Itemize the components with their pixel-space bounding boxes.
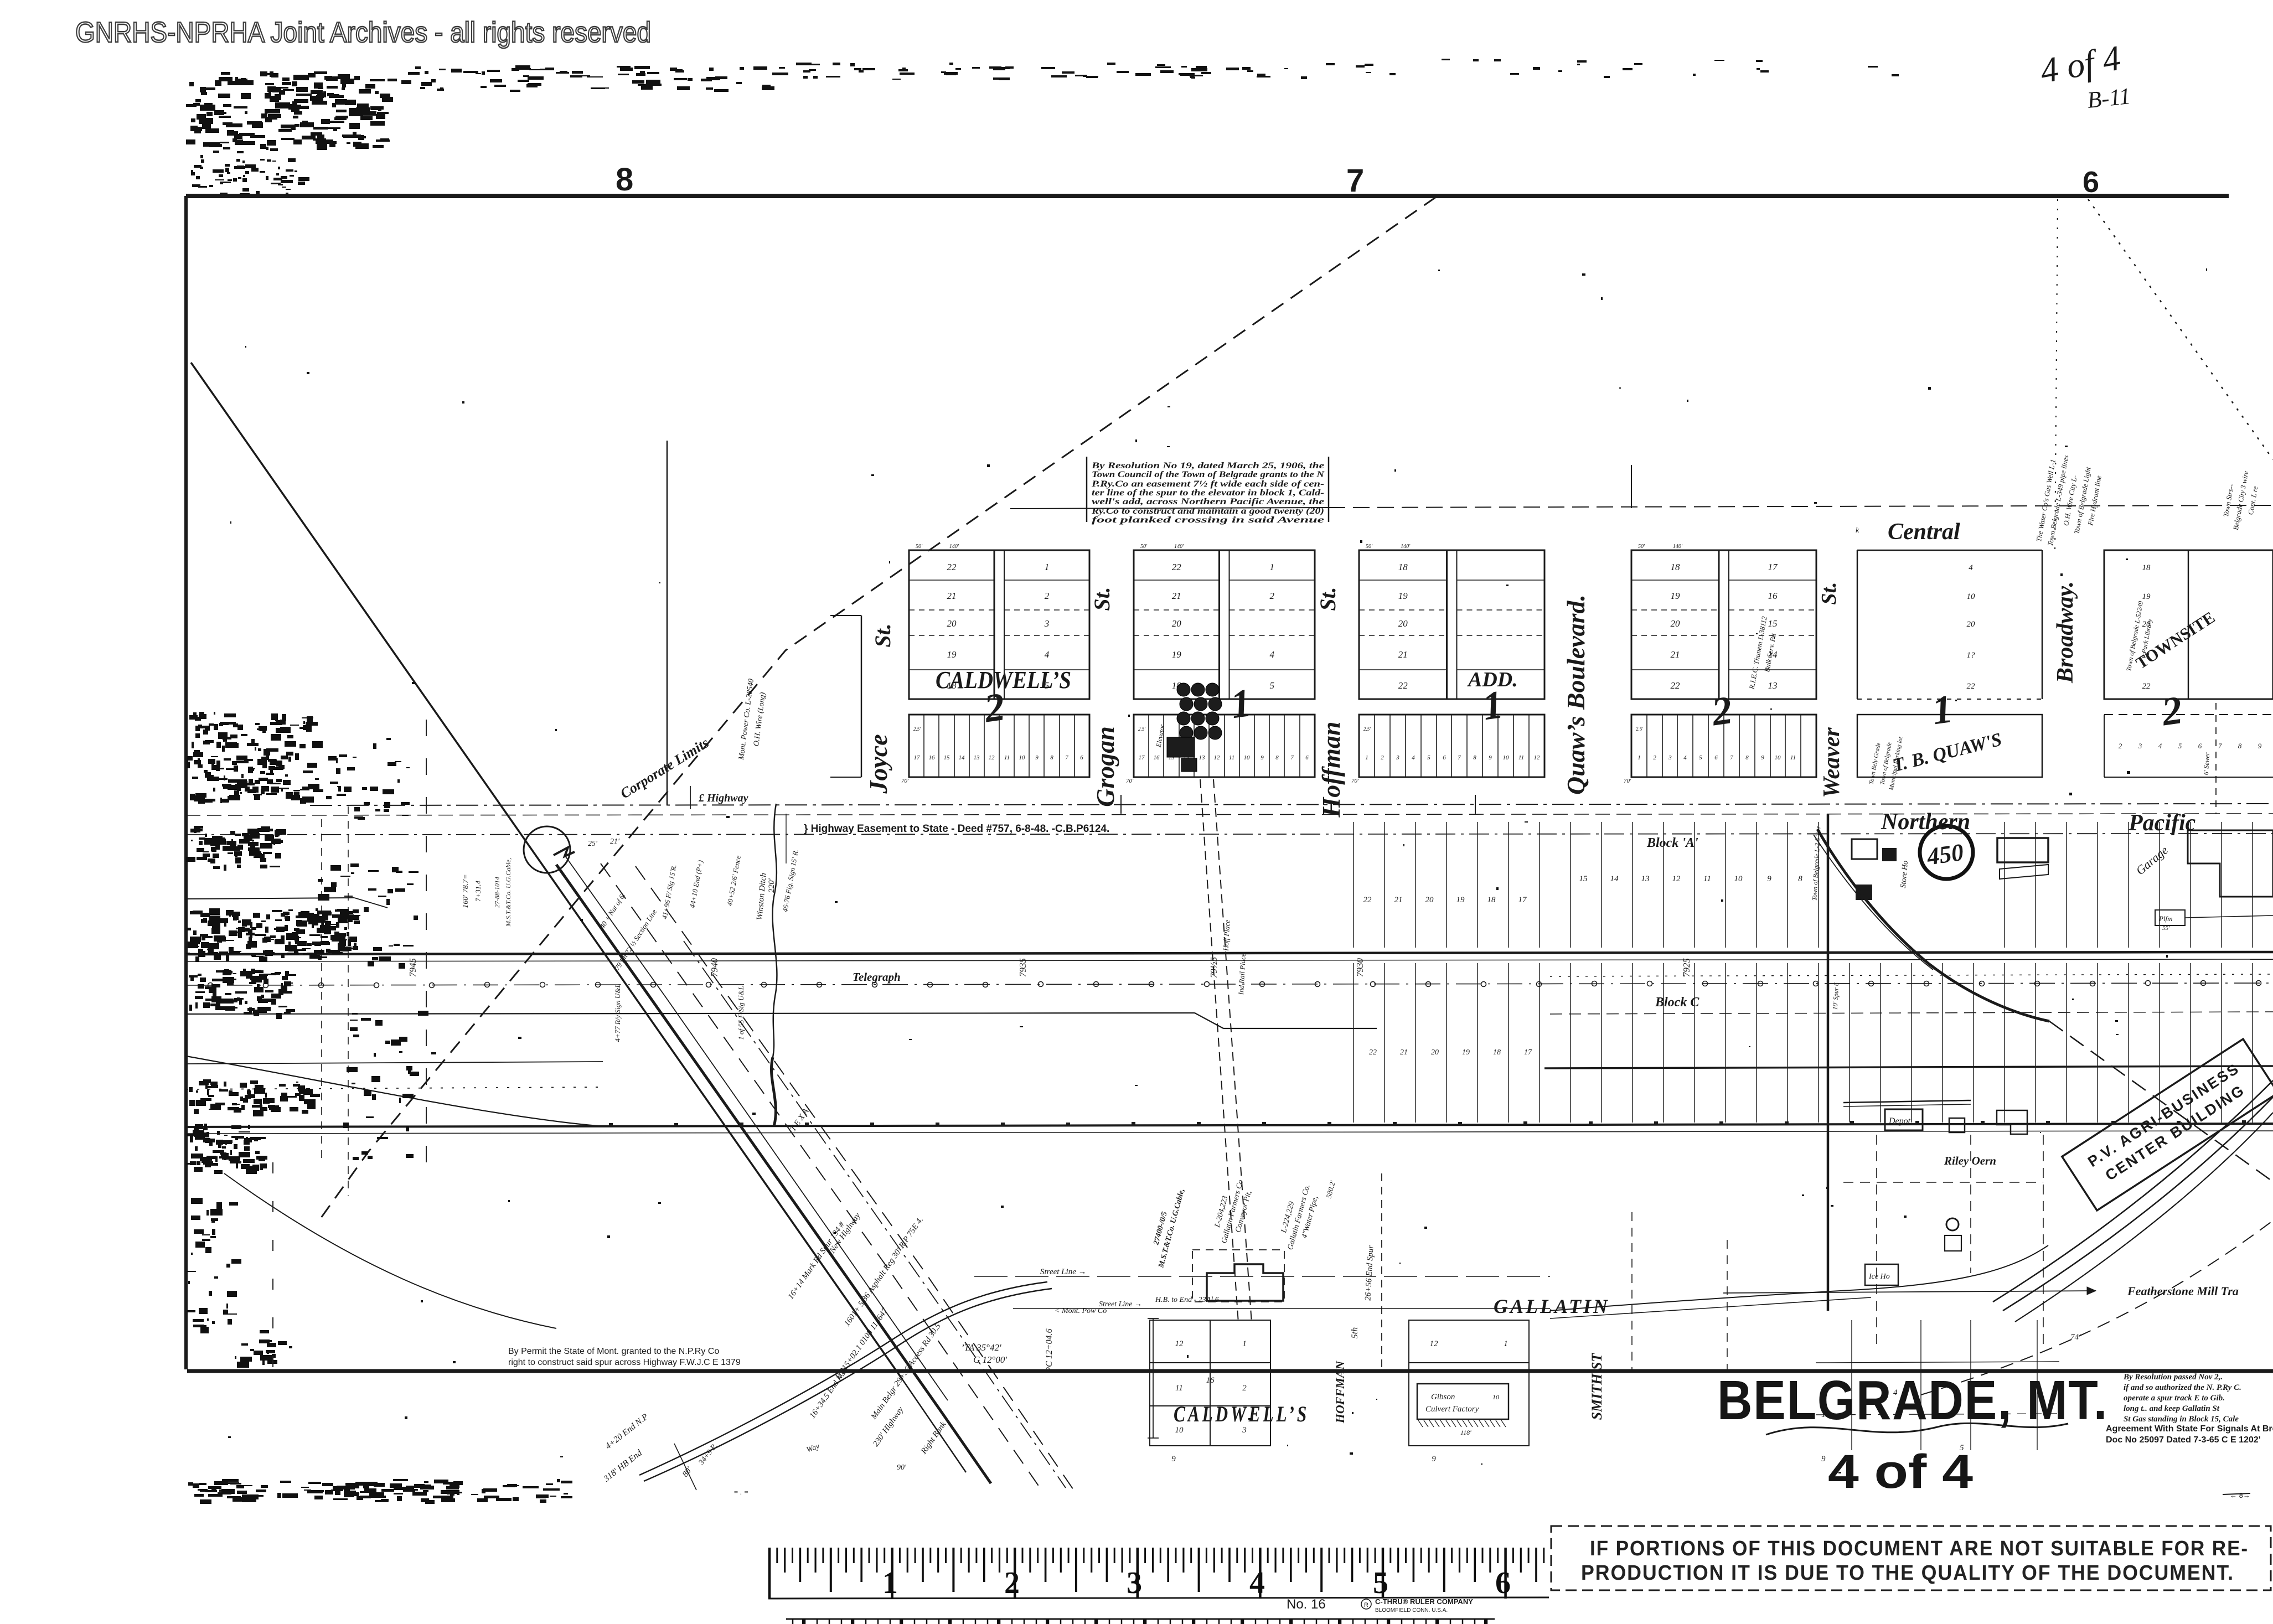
svg-text:20: 20 [1425,896,1434,904]
svg-text:9: 9 [2258,742,2262,750]
svg-text:10: 10 [1967,592,1976,601]
svg-text:3: 3 [1127,1566,1142,1600]
svg-text:3: 3 [2138,742,2142,750]
svg-text:7: 7 [1730,754,1733,761]
svg-text:Block 'A': Block 'A' [1646,836,1698,850]
svg-text:10: 10 [1734,875,1743,883]
svg-text:25': 25' [588,840,598,848]
svg-text:20: 20 [1431,1048,1439,1057]
svg-text:2: 2 [1242,1384,1247,1393]
svg-text:18: 18 [1398,562,1408,572]
svg-text:St.: St. [1315,587,1340,611]
svg-text:22: 22 [2142,682,2151,691]
svg-text:Agreement With State For Signa: Agreement With State For Signals At Broa [2106,1424,2273,1434]
svg-text:220': 220' [767,878,776,893]
svg-text:9: 9 [1821,1455,1826,1463]
svg-text:Pacific: Pacific [2128,810,2196,836]
svg-text:Riley Oern: Riley Oern [1944,1154,1996,1167]
svg-text:1 of 55 F/Sig U&L: 1 of 55 F/Sig U&L [737,986,745,1040]
svg-text:17: 17 [1524,1048,1532,1057]
svg-text:PC 12+04.6: PC 12+04.6 [1045,1328,1054,1373]
svg-text:ter line of the spur to the el: ter line of the spur to the elevator in … [1092,488,1324,498]
svg-text:10: 10 [1019,754,1026,761]
svg-text:2.5': 2.5' [1138,726,1146,732]
svg-text:12: 12 [989,754,995,761]
svg-text:6: 6 [1305,754,1309,761]
svg-text:R: R [1364,1602,1368,1609]
svg-text:2: 2 [1653,754,1656,761]
svg-text:70': 70' [1351,778,1359,784]
svg-text:1: 1 [1045,562,1050,572]
svg-text:4: 4 [1270,649,1275,660]
svg-text:PRODUCTION IT IS DUE TO THE QU: PRODUCTION IT IS DUE TO THE QUALITY OF T… [1581,1561,2234,1585]
svg-text:By Permit the State of Mont. g: By Permit the State of Mont. granted to … [508,1347,719,1356]
svg-text:15: 15 [1579,875,1588,883]
svg-text:foot planked crossing in said: foot planked crossing in said Avenue [1092,515,1324,525]
svg-text:5: 5 [1699,754,1702,761]
svg-text:7: 7 [1065,754,1068,761]
svg-text:Block C: Block C [1655,995,1699,1010]
svg-text:Town Council of the Town of Be: Town Council of the Town of Belgrade gra… [1092,470,1325,479]
svg-text:St Gas standing in Block 15, C: St Gas standing in Block 15, Cale [2124,1415,2239,1424]
svg-text:Central: Central [1888,519,1960,545]
svg-text:55': 55' [2162,925,2170,932]
svg-text:14: 14 [1610,875,1619,883]
svg-text:450: 450 [1925,839,1965,871]
svg-text:22: 22 [947,562,957,572]
svg-text:7: 7 [1346,163,1364,199]
svg-text:9: 9 [1432,1455,1436,1463]
svg-text:2: 2 [1381,754,1384,761]
svg-text:50': 50' [916,544,923,550]
svg-text:8: 8 [1473,754,1476,761]
svg-text:21: 21 [1671,649,1680,660]
svg-text:Culvert Factory: Culvert Factory [1425,1405,1479,1414]
svg-text:20: 20 [947,618,957,629]
svg-text:No. 16: No. 16 [1287,1597,1326,1612]
svg-text:Broadway.: Broadway. [2053,581,2078,684]
svg-text:B-11: B-11 [2086,84,2132,113]
svg-text:SMITH ST: SMITH ST [1589,1353,1605,1420]
svg-text:} Highway Easement to State -: } Highway Easement to State - Deed #757,… [804,823,1109,835]
svg-text:15: 15 [1768,618,1778,629]
svg-text:P.Ry.Co an easement 7½ ft wide: P.Ry.Co an easement 7½ ft wide each side… [1092,479,1324,489]
svg-text:= . =: = . = [733,1488,748,1496]
svg-text:21: 21 [1172,591,1181,601]
svg-text:140': 140' [949,544,959,550]
svg-text:3: 3 [1044,618,1050,629]
svg-text:13: 13 [1199,754,1206,761]
svg-text:12: 12 [1672,875,1681,883]
svg-text:7: 7 [2218,742,2222,750]
svg-text:11: 11 [1518,754,1524,761]
svg-text:21': 21' [610,837,620,846]
svg-text:2.5': 2.5' [913,726,921,732]
svg-text:50': 50' [1366,544,1373,550]
svg-text:18: 18 [1493,1048,1501,1057]
svg-text:4: 4 [1683,754,1687,761]
svg-text:8: 8 [2238,742,2242,750]
svg-text:1: 1 [1504,1339,1508,1348]
svg-text:1: 1 [1637,754,1641,761]
svg-text:70': 70' [901,778,909,784]
svg-text:CALDWELL’S: CALDWELL’S [936,666,1071,694]
svg-text:2: 2 [1004,1566,1020,1600]
svg-text:8: 8 [1798,875,1802,883]
svg-text:21: 21 [1394,896,1403,904]
svg-text:1: 1 [1242,1339,1247,1348]
svg-text:160' 78.7=: 160' 78.7= [462,874,470,908]
svg-text:11: 11 [1703,875,1711,883]
svg-text:Doc No 25097 Dated 7-3-65 C E: Doc No 25097 Dated 7-3-65 C E 1202' [2106,1435,2261,1445]
svg-text:18: 18 [1487,896,1496,904]
svg-text:22: 22 [1671,680,1681,691]
svg-text:11: 11 [1790,754,1796,761]
svg-text:Hoffman: Hoffman [1317,722,1345,818]
svg-text:2.5': 2.5' [1363,726,1371,732]
svg-text:4+77 R/y Sign U&L: 4+77 R/y Sign U&L [613,984,622,1042]
svg-text:17: 17 [914,754,921,761]
svg-text:6: 6 [1080,754,1083,761]
svg-text:k: k [1856,526,1859,535]
svg-text:6: 6 [1714,754,1718,761]
svg-text:1: 1 [1270,562,1275,572]
svg-text:5: 5 [1427,754,1430,761]
svg-text:if and so authorized the N. P.: if and so authorized the N. P.Ry C. [2124,1383,2241,1392]
svg-text:2: 2 [2119,742,2122,750]
svg-text:Depot: Depot [1888,1116,1911,1126]
svg-text:8: 8 [1275,754,1279,761]
svg-text:9: 9 [1035,754,1039,761]
svg-text:20: 20 [1172,618,1182,629]
svg-text:Ice Ho: Ice Ho [1868,1273,1890,1281]
svg-text:St.: St. [1817,582,1841,604]
svg-text:BELGRADE, MT.: BELGRADE, MT. [1717,1369,2108,1431]
svg-text:6: 6 [2083,165,2099,199]
svg-text:1?: 1? [1967,651,1976,660]
svg-text:16: 16 [1206,1376,1215,1385]
svg-text:7+31.4: 7+31.4 [474,880,482,902]
svg-text:long t.. and keep Gallatin St: long t.. and keep Gallatin St [2124,1404,2220,1413]
svg-text:19: 19 [1462,1048,1470,1057]
svg-text:20: 20 [1967,620,1976,629]
svg-text:70': 70' [1624,778,1631,784]
svg-text:16: 16 [1154,754,1160,761]
svg-text:C-THRU® RULER COMPANY: C-THRU® RULER COMPANY [1375,1597,1473,1606]
svg-text:4: 4 [1045,649,1050,660]
svg-text:right to construct said spur a: right to construct said spur across High… [508,1358,741,1367]
svg-text:140': 140' [1673,544,1683,550]
svg-text:3: 3 [1242,1426,1247,1435]
svg-text:Hoff Place: Hoff Place [1221,919,1231,951]
svg-text:GNRHS-NPRHA Joint Archives - a: GNRHS-NPRHA Joint Archives - all rights … [75,17,651,49]
svg-text:Gibson: Gibson [1431,1393,1455,1401]
svg-text:6' Sewer: 6' Sewer [2202,752,2211,775]
svg-text:’TA 35°42': ’TA 35°42' [961,1342,1001,1353]
svg-text:5th: 5th [1350,1327,1360,1338]
svg-text:17: 17 [1139,754,1145,761]
svg-text:IF PORTIONS OF THIS DOCUMENT A: IF PORTIONS OF THIS DOCUMENT ARE NOT SUI… [1590,1537,2249,1560]
svg-text:90': 90' [897,1463,907,1472]
svg-text:3: 3 [1668,754,1672,761]
svg-text:7: 7 [1458,754,1461,761]
svg-text:7930: 7930 [1355,958,1365,977]
svg-text:8: 8 [616,162,633,198]
svg-text:4 of 4: 4 of 4 [1828,1445,1973,1498]
svg-text:operate a spur track E to Gib.: operate a spur track E to Gib. [2124,1394,2225,1403]
svg-text:19: 19 [2142,592,2151,601]
svg-text:12: 12 [1175,1339,1184,1348]
svg-text:10' Spur 6: 10' Spur 6 [1831,982,1841,1010]
svg-text:GALLATIN: GALLATIN [1494,1295,1610,1317]
svg-text:Northern: Northern [1881,809,1970,835]
svg-text:22: 22 [1398,680,1408,691]
svg-text:Grogan: Grogan [1091,726,1119,807]
svg-text:12: 12 [1534,754,1541,761]
svg-text:5: 5 [1373,1566,1388,1600]
svg-text:11: 11 [1229,754,1234,761]
svg-text:6: 6 [1495,1566,1511,1600]
svg-text:HOFFMAN: HOFFMAN [1333,1361,1347,1424]
svg-text:70': 70' [1126,778,1134,784]
svg-text:22: 22 [1363,896,1372,904]
svg-text:Featherstone Mill Tra: Featherstone Mill Tra [2127,1284,2239,1298]
svg-text:19: 19 [1456,896,1465,904]
svg-text:10: 10 [1775,754,1781,761]
svg-text:21: 21 [1398,649,1408,660]
svg-text:Telegraph: Telegraph [853,970,901,984]
svg-text:118': 118' [1460,1429,1471,1436]
svg-text:By Resolution passed Nov 2,.: By Resolution passed Nov 2,. [2123,1373,2223,1382]
svg-text:12: 12 [1430,1339,1439,1348]
svg-text:9: 9 [1261,754,1264,761]
svg-text:2.5': 2.5' [1636,726,1644,732]
svg-text:7925: 7925 [1681,958,1692,977]
svg-text:16: 16 [1768,591,1778,601]
svg-text:5: 5 [2178,742,2182,750]
svg-text:18: 18 [1671,562,1681,572]
svg-text:1: 1 [1365,754,1368,761]
svg-text:11: 11 [1175,1384,1183,1393]
svg-text:£ Highway: £ Highway [698,792,748,804]
svg-text:13: 13 [1768,680,1778,691]
svg-text:Plfm: Plfm [2158,914,2173,923]
svg-text:Street Line →: Street Line → [1040,1268,1087,1276]
svg-text:< Mont. Pow Co: < Mont. Pow Co [1055,1307,1107,1315]
svg-text:Joyce: Joyce [864,734,892,794]
svg-text:4: 4 [1969,563,1973,572]
svg-text:M.S.T.&T.Co. U.G.Cable,: M.S.T.&T.Co. U.G.Cable, [504,858,512,927]
svg-text:50': 50' [1638,544,1645,550]
svg-text:22: 22 [1369,1048,1377,1057]
svg-text:well's add, across Northern Pa: well's add, across Northern Pacific Aven… [1092,497,1324,506]
svg-text:By Resolution No 19, dated Mar: By Resolution No 19, dated March 25, 190… [1091,461,1325,470]
svg-text:17: 17 [1768,562,1779,572]
svg-text:21: 21 [947,591,957,601]
svg-text:G 12°00': G 12°00' [973,1354,1007,1365]
svg-text:← 8→: ← 8→ [2230,1491,2250,1499]
svg-text:10: 10 [1492,1393,1499,1401]
svg-text:19: 19 [1172,649,1182,660]
svg-text:CALDWELL’S: CALDWELL’S [1174,1401,1309,1426]
svg-text:7: 7 [1290,754,1294,761]
svg-text:9: 9 [1767,875,1771,883]
svg-text:4: 4 [2158,742,2162,750]
svg-text:2: 2 [1270,591,1275,601]
svg-text:6: 6 [1443,754,1446,761]
svg-text:19: 19 [1671,591,1681,601]
svg-text:4: 4 [1412,754,1415,761]
svg-text:5: 5 [1270,680,1275,691]
svg-text:9: 9 [1489,754,1492,761]
svg-text:11: 11 [1004,754,1010,761]
svg-text:16: 16 [929,754,936,761]
svg-text:Weaver: Weaver [1819,727,1845,798]
svg-text:140': 140' [1401,544,1411,550]
svg-text:9: 9 [1761,754,1764,761]
svg-text:ADD.: ADD. [1467,668,1518,691]
svg-text:140': 140' [1174,544,1184,550]
svg-text:50': 50' [1140,544,1148,550]
svg-text:10: 10 [1503,754,1510,761]
svg-text:13: 13 [974,754,980,761]
svg-text:10: 10 [1244,754,1251,761]
svg-text:18: 18 [2142,563,2151,572]
svg-text:27-88-1014: 27-88-1014 [493,877,501,908]
svg-text:9: 9 [1171,1455,1176,1463]
svg-text:14: 14 [959,754,965,761]
svg-text:8: 8 [1745,754,1749,761]
svg-text:10: 10 [1175,1426,1184,1435]
svg-text:21: 21 [1400,1048,1408,1057]
svg-text:17: 17 [1518,896,1528,904]
svg-text:H.B. to End - 23Al 6: H.B. to End - 23Al 6 [1155,1296,1219,1304]
svg-text:22: 22 [1967,682,1976,691]
svg-text:15: 15 [944,754,950,761]
svg-text:20: 20 [1398,618,1408,629]
svg-text:St.: St. [1089,587,1114,611]
svg-text:1: 1 [882,1566,898,1600]
svg-text:3: 3 [1396,754,1399,761]
svg-text:BLOOMFIELD CONN. U.S.A.: BLOOMFIELD CONN. U.S.A. [1375,1607,1448,1613]
svg-text:20: 20 [1671,618,1681,629]
svg-text:13: 13 [1641,875,1650,883]
svg-text:8: 8 [1050,754,1053,761]
svg-text:19: 19 [1398,591,1408,601]
svg-text:22: 22 [1172,562,1182,572]
svg-text:2: 2 [1045,591,1050,601]
svg-text:St.: St. [870,623,895,647]
svg-text:19: 19 [947,649,957,660]
svg-text:74': 74' [2070,1333,2081,1342]
svg-text:Quaw’s Boulevard.: Quaw’s Boulevard. [1562,594,1590,795]
svg-text:12: 12 [1214,754,1221,761]
svg-text:4: 4 [1249,1566,1265,1600]
svg-text:6: 6 [2198,742,2202,750]
